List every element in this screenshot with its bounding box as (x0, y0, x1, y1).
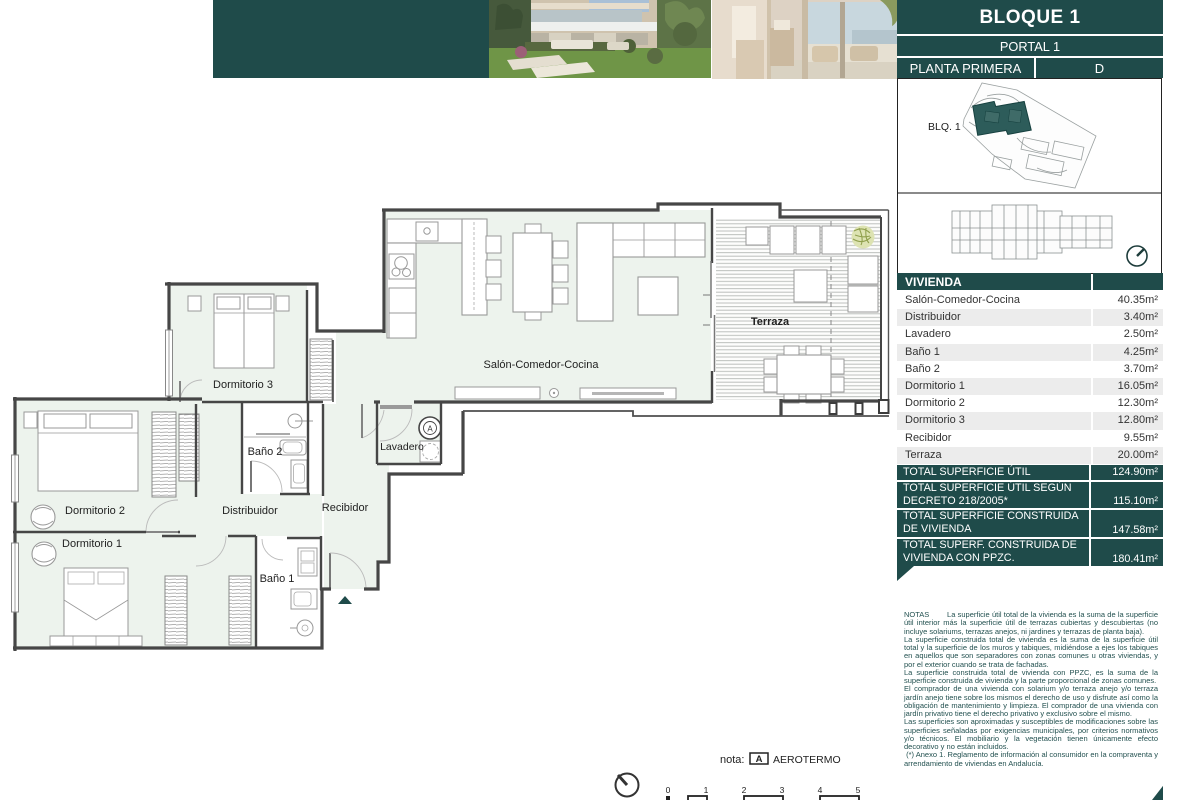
svg-text:BLQ. 1: BLQ. 1 (928, 121, 961, 133)
svg-text:4: 4 (818, 785, 823, 795)
svg-text:Dormitorio 3: Dormitorio 3 (213, 379, 273, 391)
svg-text:A: A (427, 425, 433, 434)
svg-text:0: 0 (666, 785, 671, 795)
svg-text:Terraza: Terraza (751, 316, 790, 328)
svg-text:Distribuidor: Distribuidor (222, 505, 278, 517)
svg-text:AEROTERMO: AEROTERMO (773, 754, 841, 766)
svg-text:Lavadero: Lavadero (380, 441, 424, 453)
svg-text:Dormitorio 1: Dormitorio 1 (62, 538, 122, 550)
svg-text:2: 2 (742, 785, 747, 795)
svg-text:Dormitorio 2: Dormitorio 2 (65, 505, 125, 517)
svg-text:3: 3 (780, 785, 785, 795)
svg-text:1: 1 (704, 785, 709, 795)
svg-text:nota:: nota: (720, 754, 744, 766)
svg-text:Baño 2: Baño 2 (248, 446, 283, 458)
svg-text:A: A (756, 754, 763, 765)
svg-text:5: 5 (856, 785, 861, 795)
svg-text:Recibidor: Recibidor (322, 502, 369, 514)
svg-text:Salón-Comedor-Cocina: Salón-Comedor-Cocina (484, 359, 600, 371)
svg-text:Baño 1: Baño 1 (260, 573, 295, 585)
